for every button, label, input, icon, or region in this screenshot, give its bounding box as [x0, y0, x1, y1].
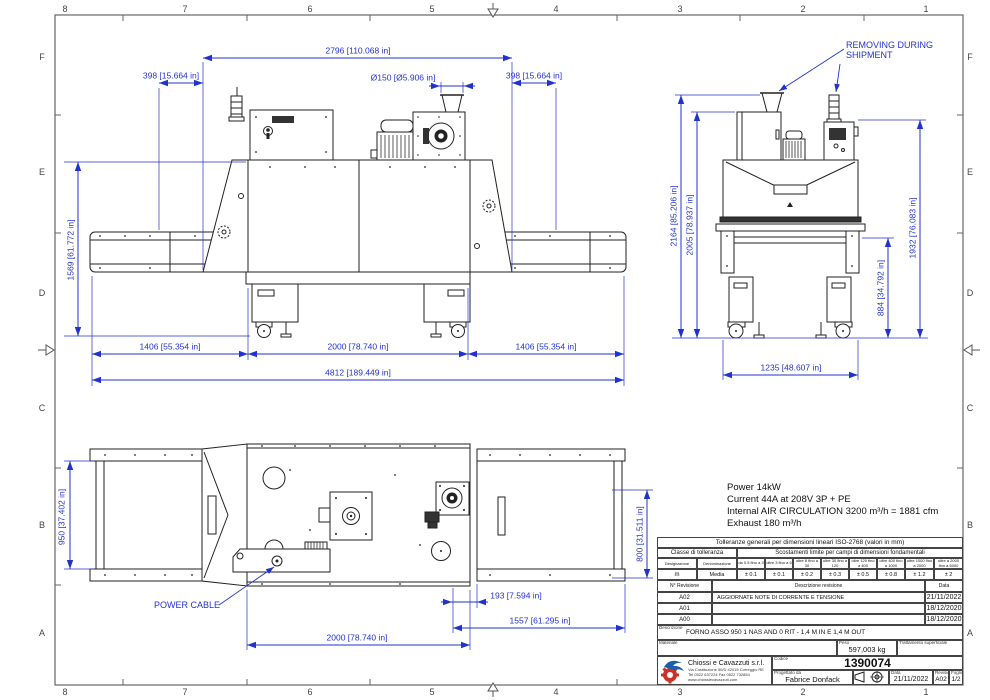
description-cell: Descrizione FORNO ASSO 950 1 NAS AND 0 R…	[657, 625, 963, 640]
date-label: Data	[891, 671, 901, 676]
revision-rev: A01	[657, 603, 712, 614]
grid-row-right: B	[967, 520, 973, 530]
removing-line2: SHIPMENT	[846, 51, 933, 61]
tolerance-range: oltre 6 fino a 30	[793, 558, 821, 569]
sheet-value: 1/2	[951, 676, 960, 683]
dim-top-oven-len: 2000 [78.740 in]	[327, 633, 388, 642]
revision-date: 18/12/2020	[925, 614, 963, 625]
grid-col-bottom: 2	[800, 687, 805, 697]
first-angle-projection-icon	[854, 671, 886, 683]
tolerance-range: oltre 30 fino a 120	[821, 558, 849, 569]
grid-row-left: A	[39, 628, 45, 638]
grid-col-top: 7	[182, 4, 187, 14]
dim-front-overall: 4812 [189.449 in]	[325, 368, 391, 377]
revision-date: 18/12/2020	[925, 603, 963, 614]
tolerance-denominazione: Denominazione	[697, 558, 737, 569]
grid-row-left: E	[39, 167, 45, 177]
grid-col-top: 5	[429, 4, 434, 14]
dim-front-infeed: 1406 [55.354 in]	[140, 342, 201, 351]
dim-side-belt-height: 884 [34.792 in]	[876, 260, 885, 316]
grid-col-top: 6	[307, 4, 312, 14]
grid-row-left: D	[39, 288, 46, 298]
tolerance-range: oltre 120 fino a 400	[849, 558, 877, 569]
tolerance-designation: m	[657, 569, 697, 580]
code-value: 1390074	[844, 656, 891, 670]
weight-label: Peso	[839, 641, 849, 646]
revision-date: 21/11/2022	[925, 592, 963, 603]
date-value: 21/11/2022	[894, 676, 929, 683]
dim-top-belt-out-width: 800 [31.511 in]	[635, 506, 644, 562]
company-logo	[660, 659, 686, 685]
dim-front-right-overhang: 398 [15.664 in]	[506, 71, 562, 80]
dim-side-height-total: 2164 [85.206 in]	[669, 186, 678, 247]
company-cell: Chiossi e Cavazzuti s.r.l. Via Costituzi…	[657, 656, 772, 685]
grid-col-bottom: 3	[677, 687, 682, 697]
sheet-label: Foglio	[951, 671, 963, 676]
revision-label: Revisione	[935, 671, 949, 676]
revision-cell: Revisione A02	[933, 670, 949, 685]
side-view	[716, 93, 865, 338]
note-current: Current 44A at 208V 3P + PE	[727, 494, 851, 505]
revision-desc: AGGIORNATE NOTE DI CORRENTE E TENSIONE	[712, 592, 925, 603]
tolerance-designazione: Designazione	[657, 558, 697, 569]
designer-cell: Progettato da Fabrice Donfack	[772, 670, 853, 685]
revision-desc	[712, 603, 925, 614]
power-cable-label: POWER CABLE	[154, 601, 220, 611]
code-label: Codice	[774, 657, 788, 662]
removing-during-shipment-label: REMOVING DURING SHIPMENT	[846, 41, 933, 61]
dim-side-height-cabinet: 2005 [78.937 in]	[685, 195, 694, 256]
dim-front-total: 2796 [110.068 in]	[325, 46, 390, 55]
tolerance-title: Tolleranze generali per dimensioni linea…	[657, 537, 963, 548]
grid-col-bottom: 4	[553, 687, 558, 697]
dim-side-width: 1235 [48.607 in]	[761, 363, 822, 372]
tolerance-range: oltre 1000 fino a 2000	[905, 558, 934, 569]
note-exhaust: Exhaust 180 m³/h	[727, 518, 801, 529]
grid-row-left: F	[39, 52, 45, 62]
tolerance-denomination: Media	[697, 569, 737, 580]
tolerance-ranges-header: Scostamenti limite per campi di dimensio…	[737, 548, 963, 558]
surface-treatment-cell: Trattamento superficiale	[897, 640, 963, 656]
tolerance-range: oltre 3 fino a 6	[765, 558, 793, 569]
date-cell: Data 21/11/2022	[889, 670, 933, 685]
revision-rev: A02	[657, 592, 712, 603]
dim-side-height-panel: 1932 [76.083 in]	[908, 198, 917, 259]
tolerance-value: ± 0.8	[877, 569, 905, 580]
tolerance-value: ± 2	[934, 569, 963, 580]
dim-front-duct: Ø150 [Ø5.906 in]	[371, 73, 436, 82]
note-airflow: Internal AIR CIRCULATION 3200 m³/h = 188…	[727, 506, 938, 517]
dim-top-cable-offset: 193 [7.594 in]	[490, 591, 542, 600]
revision-value: A02	[935, 676, 947, 683]
dim-front-left-overhang: 398 [15.664 in]	[143, 71, 199, 80]
grid-col-bottom: 6	[307, 687, 312, 697]
grid-col-top: 8	[62, 4, 67, 14]
grid-row-right: D	[967, 288, 974, 298]
description-value: FORNO ASSO 950 1 NAS AND 0 RIT - 1,4 M I…	[658, 629, 865, 636]
tolerance-value: ± 0.5	[849, 569, 877, 580]
tolerance-range: da 0.5 fino a 3	[737, 558, 765, 569]
note-power: Power 14kW	[727, 482, 781, 493]
projection-symbol-cell	[853, 670, 889, 685]
grid-col-top: 2	[800, 4, 805, 14]
revision-col-date: Data	[925, 580, 963, 592]
tolerance-range: oltre a 2000 fino a 6000	[934, 558, 963, 569]
tolerance-class-header: Classe di tolleranza	[657, 548, 737, 558]
revision-rev: A00	[657, 614, 712, 625]
grid-col-bottom: 7	[182, 687, 187, 697]
grid-col-bottom: 8	[62, 687, 67, 697]
grid-row-right: A	[967, 628, 973, 638]
top-view	[90, 444, 625, 586]
dim-front-outfeed: 1406 [55.354 in]	[516, 342, 577, 351]
dim-front-oven: 2000 [78.740 in]	[328, 342, 389, 351]
grid-row-left: B	[39, 520, 45, 530]
grid-row-left: C	[39, 403, 46, 413]
grid-row-right: F	[967, 52, 973, 62]
tolerance-value: ± 0.2	[793, 569, 821, 580]
dim-front-height: 1569 [61.772 in]	[66, 220, 75, 281]
weight-value: 597,003 kg	[848, 645, 885, 654]
code-cell: Codice 1390074	[772, 656, 963, 670]
grid-row-right: C	[967, 403, 974, 413]
revision-col-desc: Descrizione revisione	[712, 580, 925, 592]
grid-row-right: E	[967, 167, 973, 177]
designer-value: Fabrice Donfack	[785, 675, 840, 684]
tolerance-value: ± 0.1	[737, 569, 765, 580]
surface-treatment-label: Trattamento superficiale	[899, 641, 947, 646]
tolerance-value: ± 0.1	[765, 569, 793, 580]
tolerance-value: ± 1.2	[905, 569, 934, 580]
grid-col-top: 1	[923, 4, 928, 14]
designer-label: Progettato da	[774, 671, 801, 676]
company-website: www.chiossiecavazzuti.com	[688, 677, 764, 682]
revision-col-rev: N° Revisione	[657, 580, 712, 592]
description-label: Descrizione	[659, 626, 683, 631]
front-view	[90, 87, 626, 338]
revision-desc	[712, 614, 925, 625]
dim-top-outfeed-len: 1557 [61.295 in]	[510, 616, 571, 625]
company-name: Chiossi e Cavazzuti s.r.l.	[688, 660, 764, 667]
material-label: Materiale	[659, 641, 678, 646]
company-address1: Via Costituzione 50/D 42015 Correggio RE	[688, 667, 764, 672]
material-cell: Materiale	[657, 640, 837, 656]
grid-col-bottom: 1	[923, 687, 928, 697]
weight-cell: Peso 597,003 kg	[837, 640, 897, 656]
grid-col-top: 4	[553, 4, 558, 14]
grid-col-bottom: 5	[429, 687, 434, 697]
dim-top-belt-in-width: 950 [37.402 in]	[57, 489, 66, 545]
tolerance-range: oltre 400 fino a 1000	[877, 558, 905, 569]
title-block: Tolleranze generali per dimensioni linea…	[657, 537, 963, 685]
sheet-cell: Foglio 1/2	[949, 670, 963, 685]
tolerance-value: ± 0.3	[821, 569, 849, 580]
drawing-sheet: 8 7 6 5 4 3 2 1 8 7 6 5 4 3 2 1 F E D C …	[0, 0, 990, 700]
grid-col-top: 3	[677, 4, 682, 14]
